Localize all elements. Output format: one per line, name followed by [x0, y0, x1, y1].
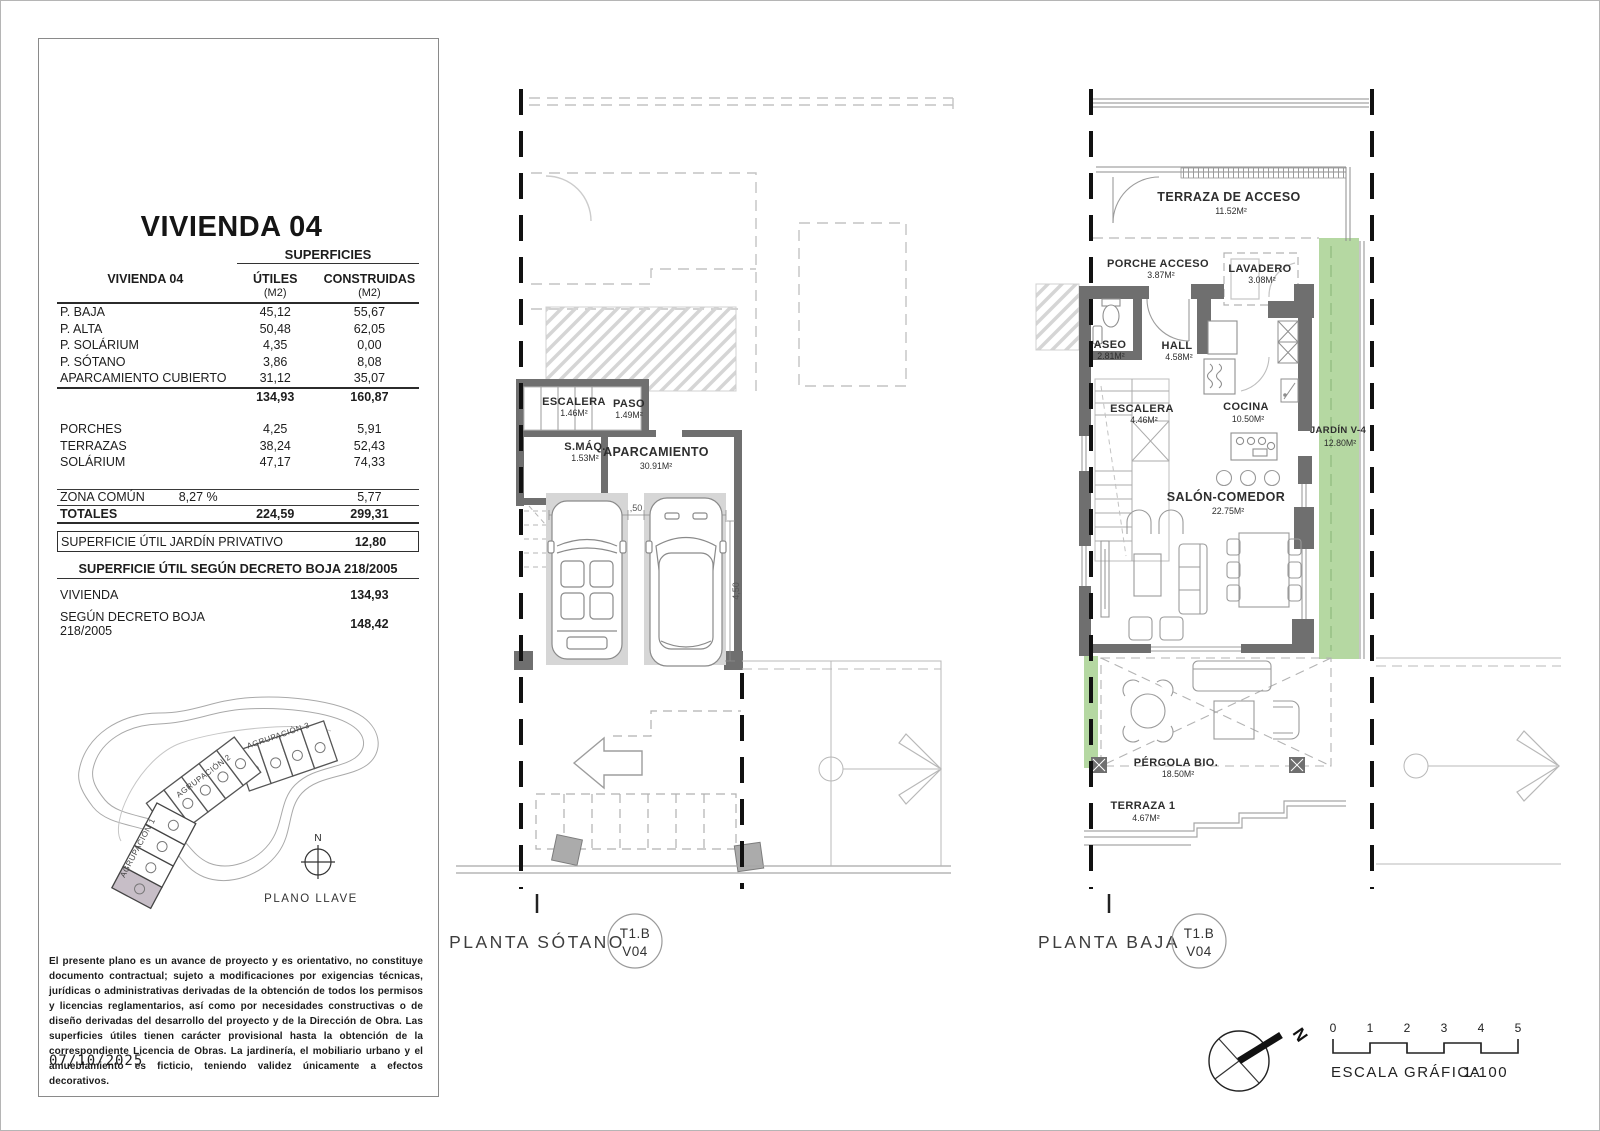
svg-text:,50: ,50: [630, 503, 643, 513]
m2-row: (M2) (M2): [57, 287, 419, 302]
neighbour-parcel: [742, 661, 941, 866]
column-headers: VIVIENDA 04 ÚTILES CONSTRUIDAS: [57, 264, 419, 287]
decreto-row: VIVIENDA 134,93: [57, 587, 419, 604]
superficies-header: SUPERFICIES: [57, 247, 419, 264]
entry-door-icon: [1147, 299, 1189, 341]
table-row: P. SÓTANO 3,86 8,08: [57, 354, 419, 371]
jardin-privativo-row: SUPERFICIE ÚTIL JARDÍN PRIVATIVO 12,80: [57, 531, 419, 552]
pantry-cabinets: [1278, 321, 1298, 402]
svg-text:T1.B: T1.B: [1184, 926, 1215, 941]
planta-sotano-drawing: 2,20 ,50 2,20 4,50: [441, 81, 961, 981]
plan-badge: [1172, 914, 1226, 968]
table-row: APARCAMIENTO CUBIERTO 31,12 35,07: [57, 370, 419, 387]
superficies-caption: SUPERFICIES: [237, 247, 419, 262]
site-north-label: N: [314, 833, 321, 844]
room-label: LAVADERO: [1228, 263, 1291, 275]
round-table-icon: [1123, 680, 1173, 742]
plan-name: PLANTA SÓTANO: [449, 931, 625, 952]
pouf-icons: [1129, 617, 1183, 640]
svg-text:4.58M²: 4.58M²: [1165, 352, 1192, 362]
room-label: HALL: [1162, 340, 1193, 352]
svg-text:3.08M²: 3.08M²: [1248, 275, 1275, 285]
svg-text:22.75M²: 22.75M²: [1212, 506, 1244, 516]
dining-table-icon: [1227, 533, 1301, 607]
svg-text:11.52M²: 11.52M²: [1215, 206, 1247, 216]
stool-icons: [1217, 471, 1280, 486]
driveway-arrow-icon: [574, 738, 642, 788]
decreto-row: SEGÚN DECRETO BOJA 218/2005 148,42: [57, 616, 419, 633]
room-label: TERRAZA 1: [1111, 800, 1176, 812]
zona-comun-pct: 8,27 %: [179, 490, 218, 504]
table-row: P. ALTA 50,48 62,05: [57, 321, 419, 338]
table-row: P. SOLÁRIUM 4,35 0,00: [57, 337, 419, 354]
svg-text:3.87M²: 3.87M²: [1147, 270, 1174, 280]
svg-text:2: 2: [1404, 1021, 1411, 1035]
outdoor-sofa-icon: [1193, 661, 1299, 739]
room-label: ESCALERA: [1110, 403, 1174, 415]
convertible-car-icon: [548, 501, 626, 659]
unit-title: VIVIENDA 04: [39, 211, 424, 244]
svg-text:5: 5: [1515, 1021, 1522, 1035]
table-row: TERRAZAS 38,24 52,43: [57, 438, 419, 455]
scale-ratio: 1:100: [1463, 1064, 1508, 1081]
kitchen-island-icon: [1231, 433, 1277, 460]
plan-date: 07/10/2025: [49, 1053, 143, 1069]
table-row: SOLÁRIUM 47,17 74,33: [57, 454, 419, 471]
svg-text:V04: V04: [622, 944, 648, 959]
garden-area: [1319, 238, 1359, 659]
svg-text:12.80M²: 12.80M²: [1324, 438, 1356, 448]
room-label: APARCAMIENTO: [603, 445, 709, 459]
room-label: COCINA: [1223, 401, 1269, 413]
svg-text:10.50M²: 10.50M²: [1232, 414, 1264, 424]
room-label: PASO: [613, 398, 645, 410]
garden-strip: [1084, 656, 1098, 768]
floor-plan-sheet: VIVIENDA 04 SUPERFICIES VIVIENDA 04 ÚTIL…: [0, 0, 1600, 1131]
site-agrupacion-1: [112, 803, 196, 908]
compass-north-label: N: [1289, 1024, 1312, 1045]
svg-text:V04: V04: [1186, 944, 1212, 959]
svg-text:4,50: 4,50: [731, 582, 741, 600]
boundary-line: [521, 89, 742, 889]
plano-llave-caption: PLANO LLAVE: [264, 893, 358, 905]
decreto-heading: SUPERFICIE ÚTIL SEGÚN DECRETO BOJA 218/2…: [57, 561, 419, 579]
superficies-underline: [237, 263, 419, 264]
svg-text:4: 4: [1478, 1021, 1485, 1035]
ground-lines: [456, 866, 951, 873]
neighbour-parcel: [1376, 658, 1561, 864]
svg-text:2.81M²: 2.81M²: [1097, 351, 1124, 361]
toilet-icon: [1102, 299, 1120, 327]
plan-name: PLANTA BAJA: [1038, 932, 1180, 952]
svg-text:30.91M²: 30.91M²: [640, 461, 672, 471]
surfaces-panel: VIVIENDA 04 SUPERFICIES VIVIENDA 04 ÚTIL…: [38, 38, 439, 1097]
svg-text:1: 1: [1367, 1021, 1374, 1035]
car-icon: [646, 498, 726, 666]
scale-bar: 0 1 2 3 4 5 ESCALA GRÁFICA 1:100: [1330, 1021, 1522, 1081]
planta-baja-drawing: TERRAZA DE ACCESO 11.52M² PORCHE ACCESO …: [1021, 81, 1581, 981]
svg-text:T1.B: T1.B: [620, 926, 651, 941]
door-arc-icon: [1113, 177, 1159, 223]
col-header-vivienda: VIVIENDA 04: [57, 272, 231, 286]
svg-text:18.50M²: 18.50M²: [1162, 769, 1194, 779]
svg-text:3: 3: [1441, 1021, 1448, 1035]
room-label: PORCHE ACCESO: [1107, 258, 1209, 270]
surfaces-table: SUPERFICIES VIVIENDA 04 ÚTILES CONSTRUID…: [57, 247, 419, 632]
fridge-icon: [1208, 321, 1237, 354]
top-fence: [1093, 99, 1369, 172]
exterior-steps: [536, 711, 741, 849]
north-compass-icon: N: [1209, 1024, 1311, 1091]
svg-text:4.46M²: 4.46M²: [1130, 415, 1157, 425]
svg-text:0: 0: [1330, 1021, 1337, 1035]
site-key-plan: AGRUPACIÓN 3 AGRUPACIÓN 2 AGRUPACIÓN 1 N…: [56, 686, 406, 916]
col-header-utiles: ÚTILES: [231, 272, 320, 286]
room-label: JARDÍN V-4: [1310, 425, 1367, 436]
room-label: S.MÁQ.: [564, 440, 606, 453]
svg-text:4.67M²: 4.67M²: [1132, 813, 1159, 823]
compass-and-scale: N 0 1 2 3 4 5 ESCALA GRÁFICA 1:100: [1181, 991, 1581, 1111]
m2-utiles: (M2): [231, 287, 320, 299]
subtotal-row: 134,93 160,87: [57, 389, 419, 406]
room-label: ESCALERA: [542, 396, 606, 408]
hatch-area: [546, 307, 736, 391]
room-label: PÉRGOLA BIO.: [1134, 756, 1218, 769]
post: [734, 842, 763, 871]
room-label: ASEO: [1094, 339, 1127, 351]
m2-construidas: (M2): [320, 287, 419, 299]
north-compass-icon: [301, 845, 335, 879]
room-label: TERRAZA DE ACCESO: [1157, 190, 1300, 204]
table-row: P. BAJA 45,12 55,67: [57, 304, 419, 321]
pergola-louvers: [1181, 168, 1346, 178]
svg-text:1.53M²: 1.53M²: [571, 453, 598, 463]
svg-text:1.49M²: 1.49M²: [615, 410, 642, 420]
sofa-icon: [1179, 544, 1207, 614]
table-row: PORCHES 4,25 5,91: [57, 421, 419, 438]
totales-row: TOTALES 224,59 299,31: [57, 506, 419, 523]
oven-icon: [1204, 357, 1269, 394]
hatch-area: [1036, 284, 1079, 350]
col-header-construidas: CONSTRUIDAS: [320, 272, 419, 286]
zona-comun-row: ZONA COMÚN 8,27 % 5,77: [57, 490, 419, 505]
room-label: SALÓN-COMEDOR: [1167, 489, 1285, 504]
svg-text:1.46M²: 1.46M²: [560, 408, 587, 418]
post: [552, 835, 583, 866]
scale-caption: ESCALA GRÁFICA: [1331, 1064, 1481, 1081]
